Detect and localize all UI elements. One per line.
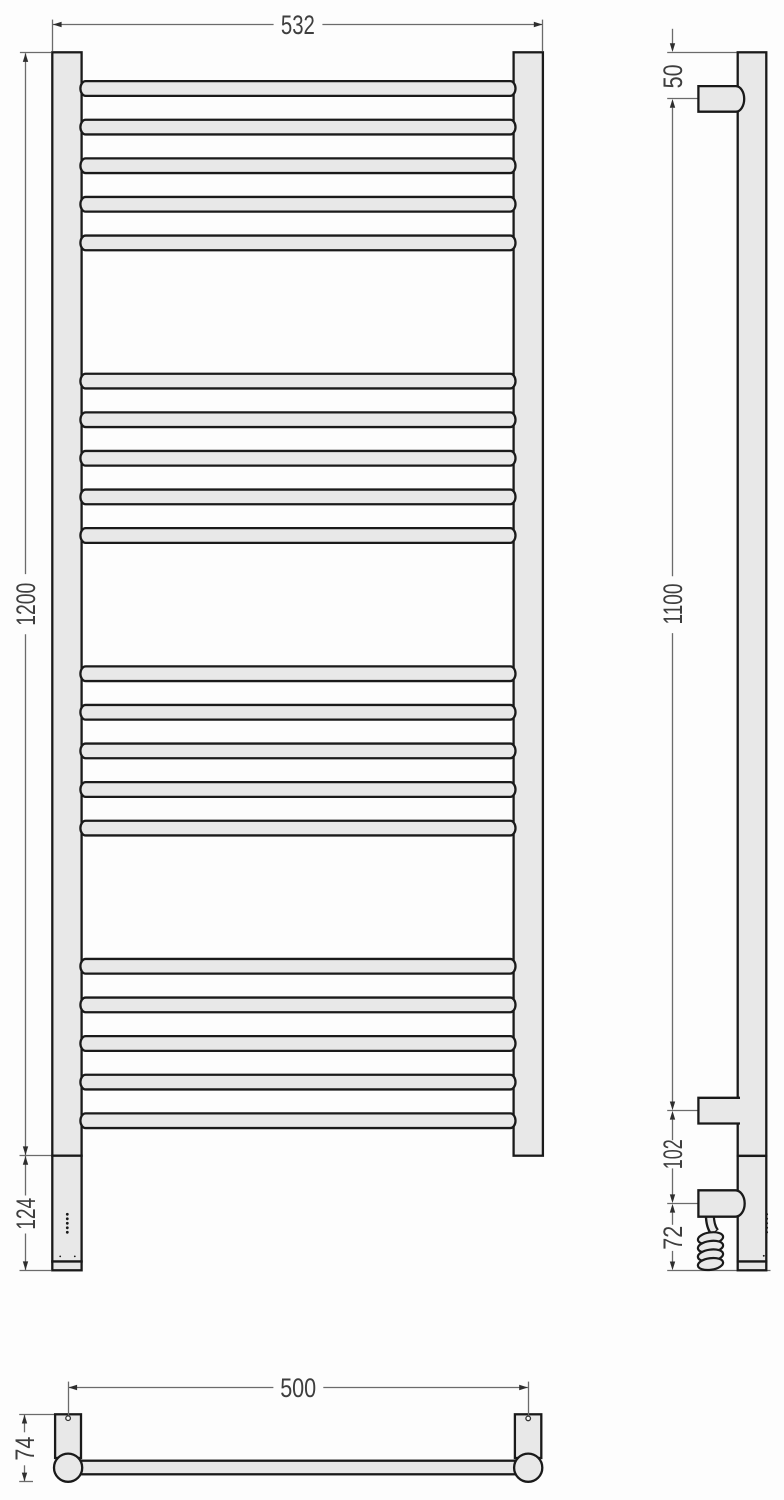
svg-text:50: 50	[658, 64, 688, 88]
svg-text:74: 74	[10, 1437, 40, 1461]
svg-text:500: 500	[280, 1373, 316, 1403]
svg-text:1200: 1200	[11, 583, 41, 626]
svg-text:532: 532	[281, 10, 315, 40]
svg-text:124: 124	[11, 1198, 41, 1230]
svg-text:72: 72	[658, 1226, 688, 1250]
svg-text:1100: 1100	[658, 584, 688, 625]
svg-text:102: 102	[658, 1139, 688, 1169]
